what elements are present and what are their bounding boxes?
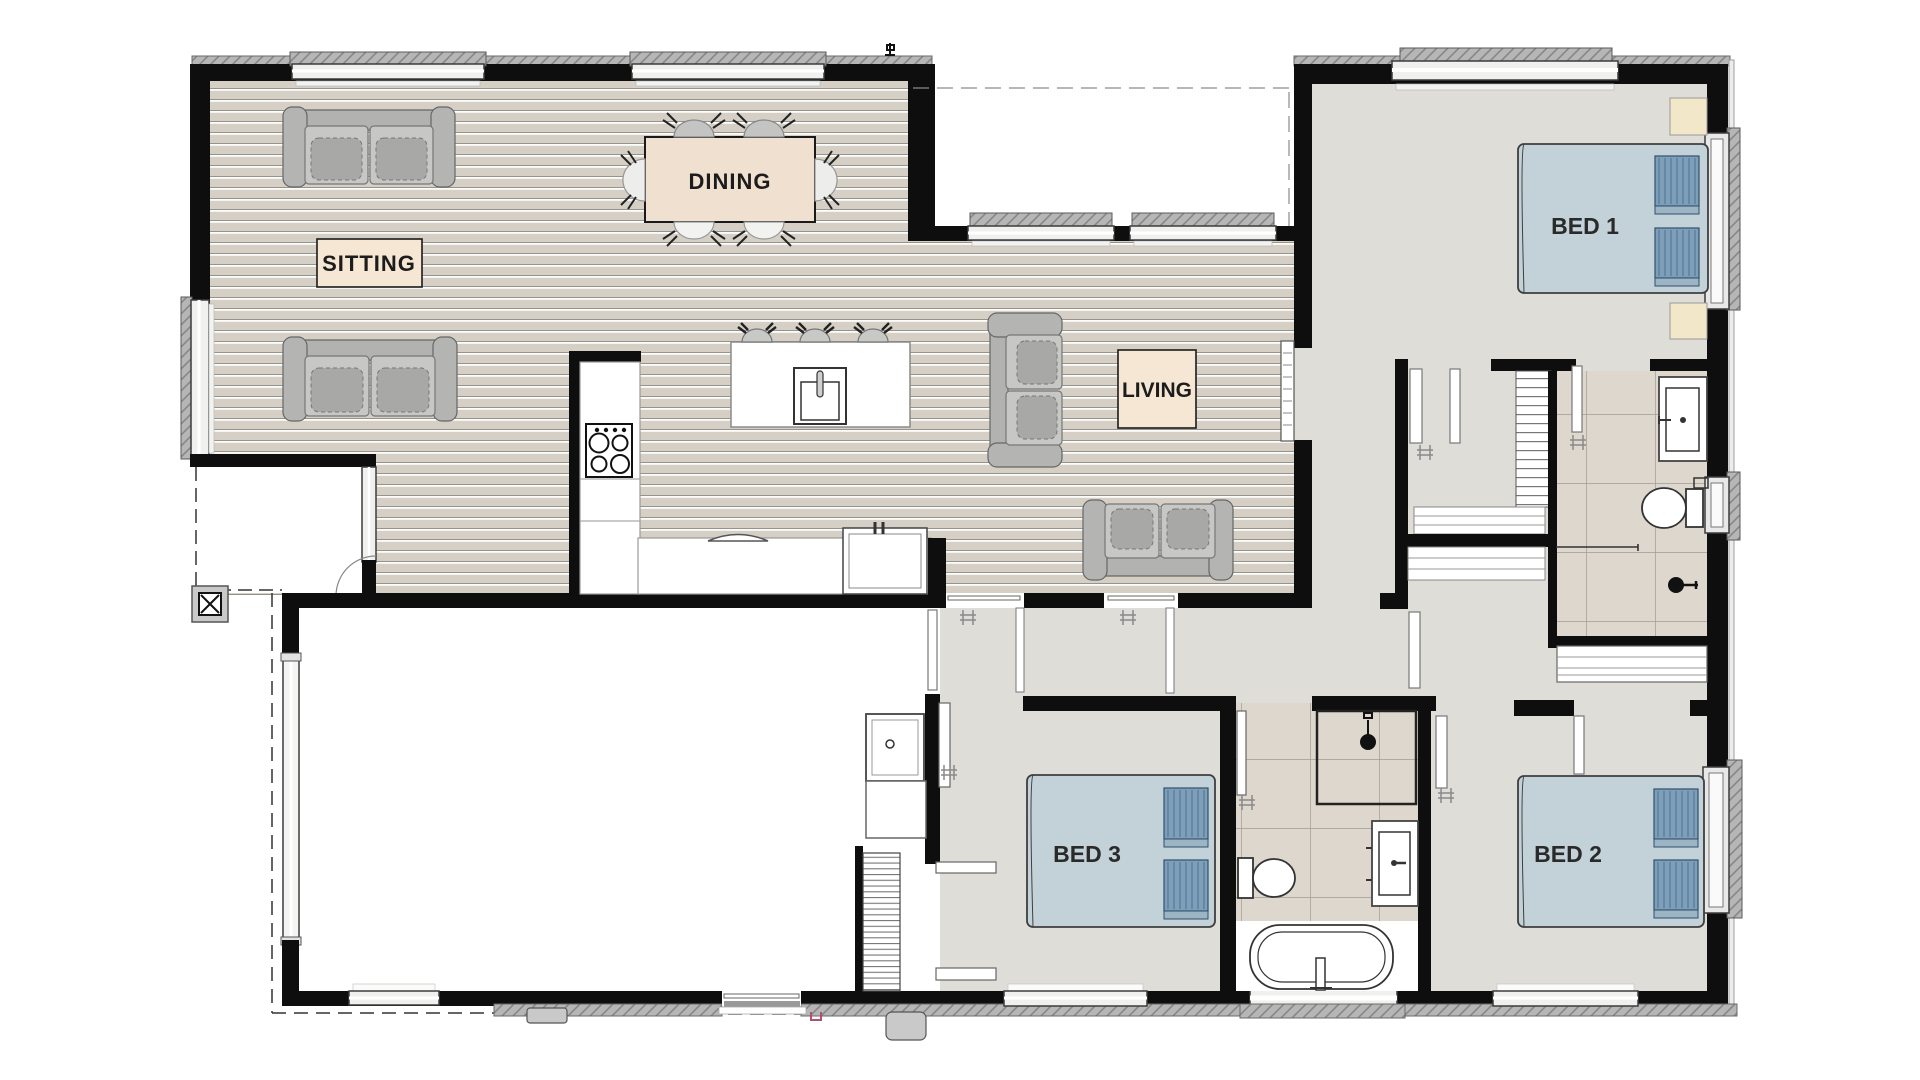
svg-text:DINING: DINING — [689, 169, 772, 194]
svg-text:BED 1: BED 1 — [1551, 213, 1619, 239]
svg-text:LIVING: LIVING — [1122, 379, 1192, 402]
svg-text:BED 2: BED 2 — [1534, 841, 1602, 867]
svg-text:SITTING: SITTING — [322, 251, 416, 276]
svg-text:BED 3: BED 3 — [1053, 841, 1121, 867]
